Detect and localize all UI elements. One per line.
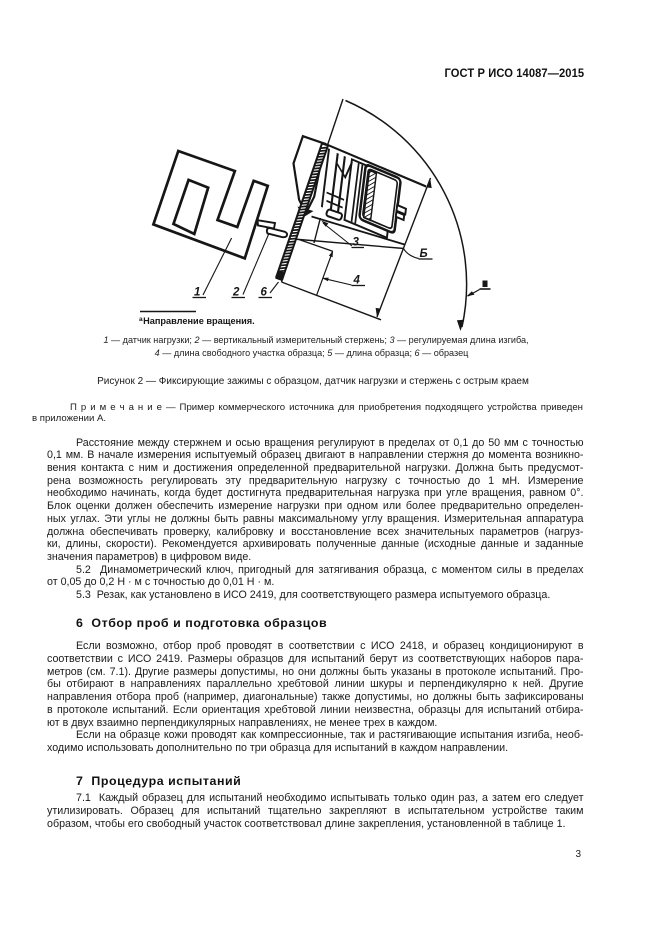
svg-text:аНаправление вращения.: аНаправление вращения. [139, 316, 255, 326]
svg-text:4: 4 [353, 275, 361, 287]
svg-text:6: 6 [261, 287, 268, 299]
svg-text:3: 3 [353, 237, 360, 249]
svg-text:Б: Б [420, 248, 428, 260]
svg-text:2: 2 [232, 287, 240, 299]
svg-text:1: 1 [194, 287, 200, 299]
